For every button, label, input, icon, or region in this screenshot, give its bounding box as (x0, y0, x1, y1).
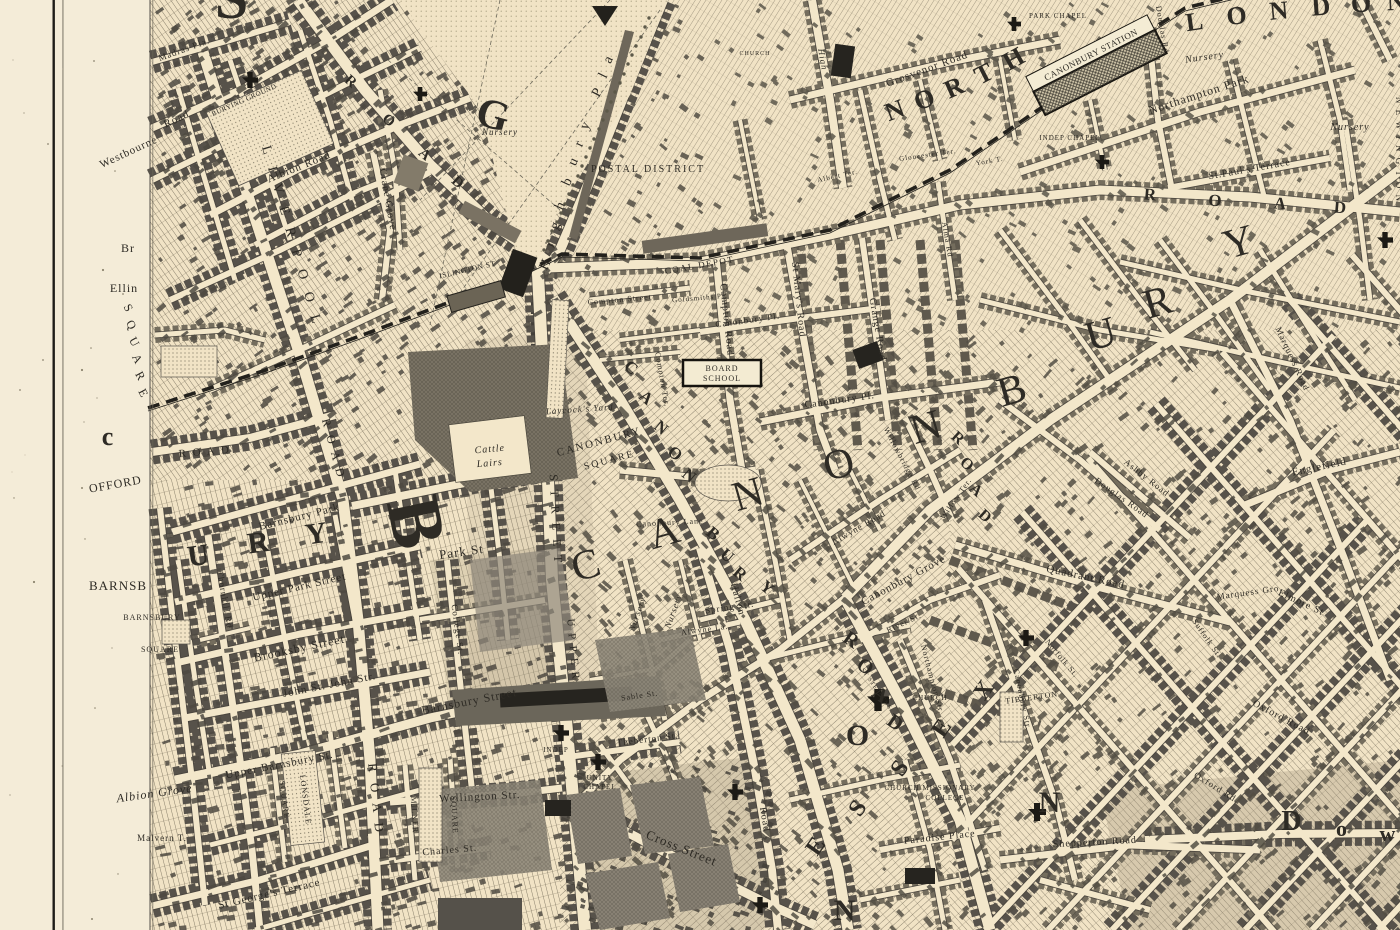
svg-text:R: R (1143, 184, 1158, 204)
svg-text:Lairs: Lairs (475, 457, 503, 470)
svg-text:CHAPEL: CHAPEL (583, 783, 616, 791)
svg-text:BOARD: BOARD (705, 364, 738, 373)
svg-text:D: D (1311, 0, 1333, 22)
svg-text:INDEP CHAPEL: INDEP CHAPEL (1039, 134, 1100, 142)
svg-text:N: N (1386, 0, 1400, 16)
svg-text:Br: Br (121, 241, 135, 255)
svg-text:N: N (1039, 786, 1062, 819)
svg-text:N: N (834, 894, 857, 927)
svg-text:D: D (1281, 806, 1302, 837)
svg-text:Malvern T.: Malvern T. (137, 833, 187, 843)
svg-text:D: D (1333, 197, 1348, 217)
svg-text:O: O (1208, 190, 1224, 210)
svg-text:Nursery: Nursery (1329, 122, 1369, 133)
svg-text:PARK CHAPEL: PARK CHAPEL (1029, 12, 1087, 20)
svg-text:BARNSBURY: BARNSBURY (123, 613, 180, 622)
svg-text:A: A (1273, 193, 1288, 213)
svg-text:o: o (1336, 816, 1348, 841)
svg-text:O: O (1225, 0, 1249, 31)
svg-text:c: c (102, 422, 115, 451)
svg-text:UNITY: UNITY (587, 774, 614, 782)
svg-text:SQUARE: SQUARE (141, 645, 179, 654)
svg-text:BARNSB: BARNSB (89, 578, 147, 593)
svg-text:SCHOOL: SCHOOL (703, 374, 741, 383)
svg-text:CHURCH MISSIONARY: CHURCH MISSIONARY (884, 784, 975, 792)
svg-text:S: S (215, 0, 249, 31)
svg-text:Ellin: Ellin (110, 281, 138, 295)
svg-text:N: N (1268, 0, 1290, 26)
svg-text:w: w (1380, 821, 1397, 846)
svg-text:POSTAL DISTRICT: POSTAL DISTRICT (591, 164, 705, 175)
svg-text:MILNER: MILNER (409, 796, 420, 833)
svg-text:Nursery: Nursery (481, 127, 518, 137)
svg-text:O: O (846, 719, 870, 752)
svg-text:O: O (1350, 0, 1373, 19)
svg-text:U: U (185, 538, 212, 574)
svg-text:N E W I N G T O N: N E W I N G T O N (1394, 97, 1400, 203)
svg-text:INDEP: INDEP (543, 746, 569, 754)
svg-text:COLLEGE: COLLEGE (926, 794, 965, 802)
svg-text:CHURCH: CHURCH (739, 51, 770, 57)
